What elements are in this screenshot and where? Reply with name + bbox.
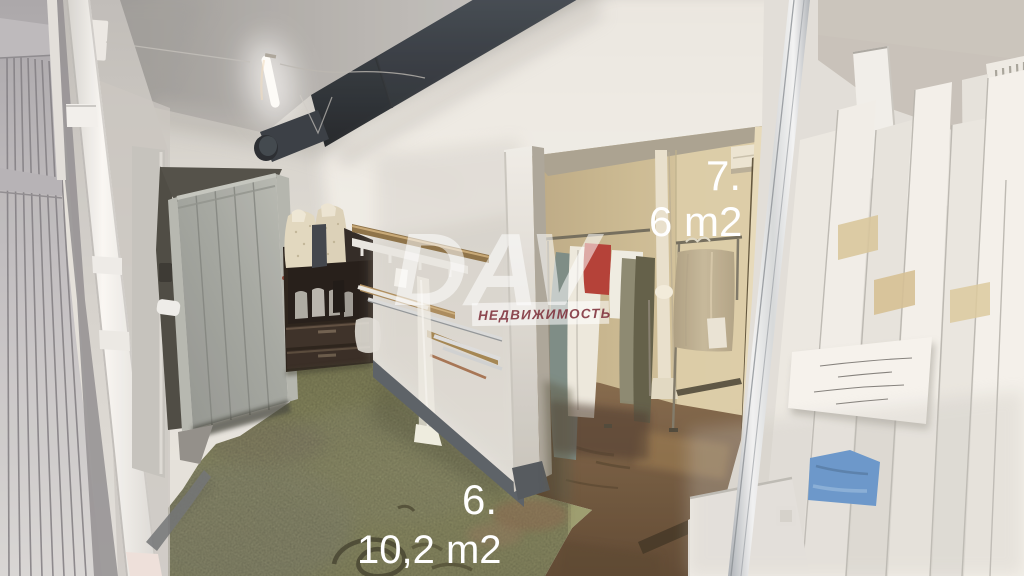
svg-text:НЕДВИЖИМОСТЬ: НЕДВИЖИМОСТЬ [478, 306, 612, 323]
svg-text:6.: 6. [462, 476, 497, 523]
svg-text:7.: 7. [706, 152, 741, 199]
svg-text:6 m2: 6 m2 [649, 198, 742, 245]
svg-text:10,2 m2: 10,2 m2 [357, 528, 502, 572]
